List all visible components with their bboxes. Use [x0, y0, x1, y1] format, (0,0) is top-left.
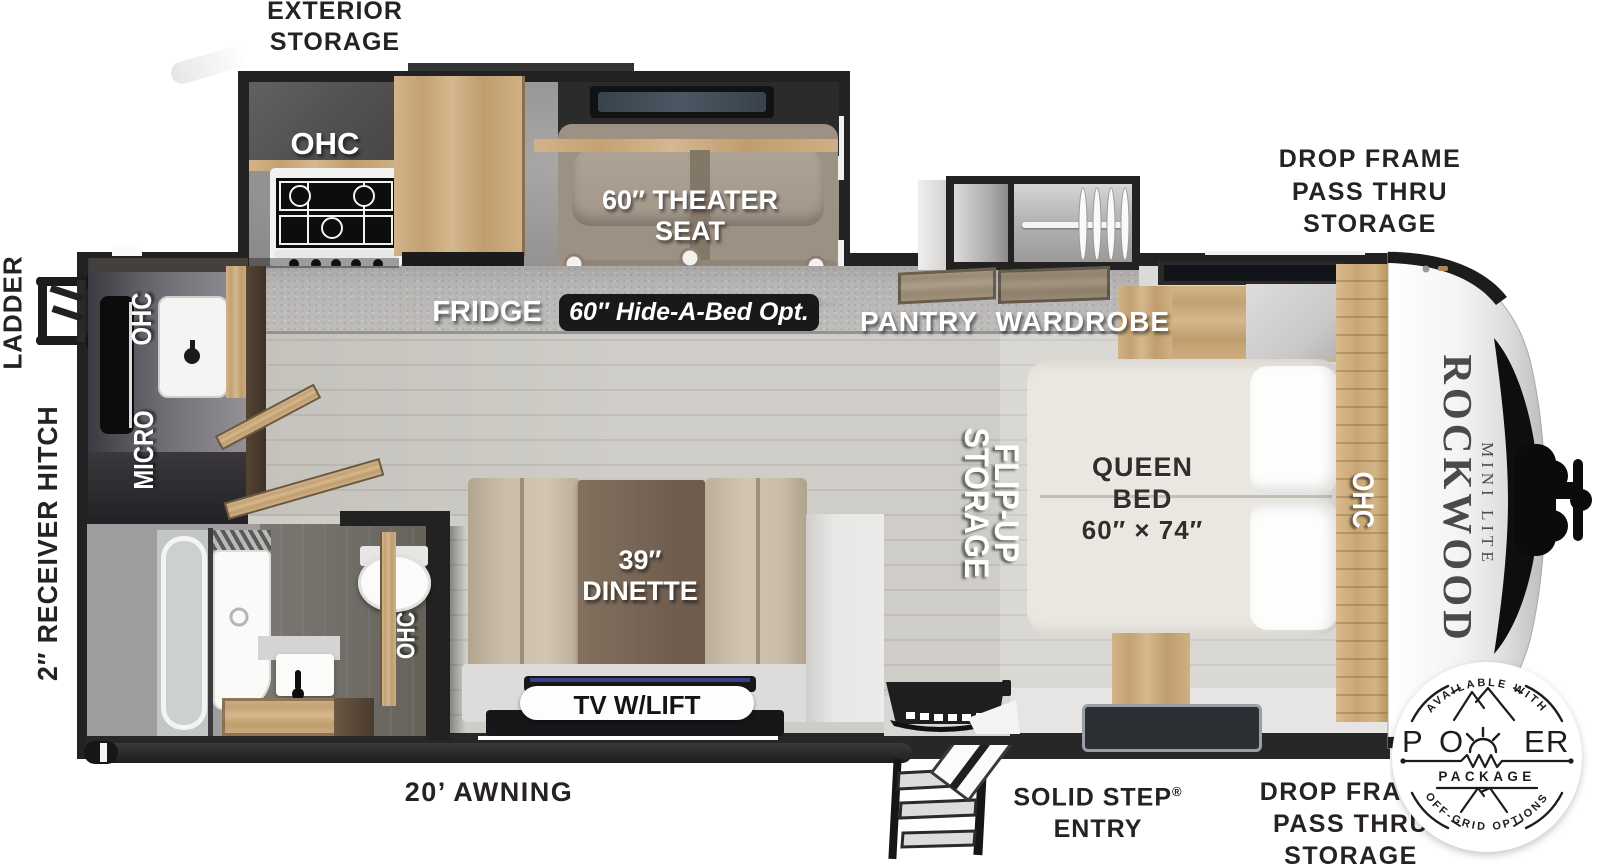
- svg-text:R: R: [1546, 724, 1568, 759]
- svg-text:O: O: [1439, 724, 1463, 759]
- svg-text:PACKAGE: PACKAGE: [1438, 769, 1535, 784]
- svg-text:P: P: [1402, 724, 1423, 759]
- svg-text:E: E: [1524, 724, 1545, 759]
